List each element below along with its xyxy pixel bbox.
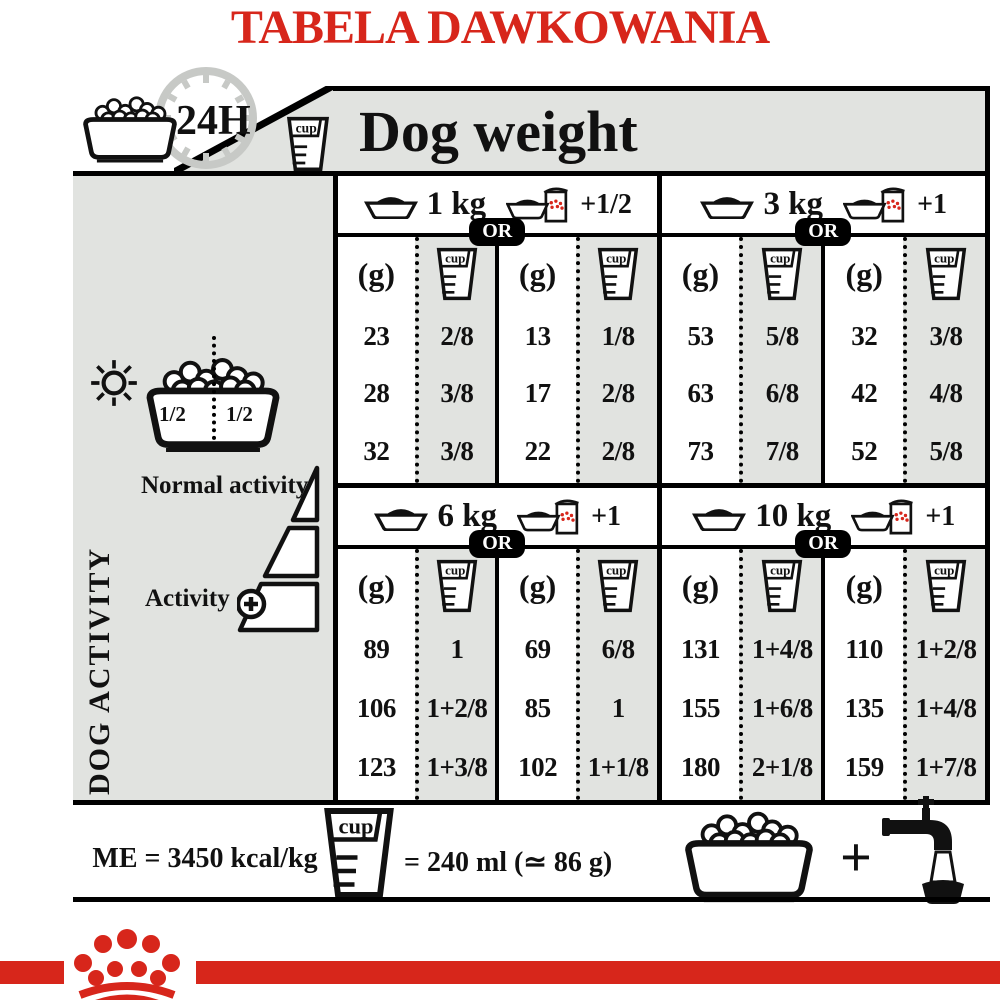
cup-value: 3/8	[440, 368, 473, 425]
grams-value: 69	[525, 623, 551, 682]
kibble-only-column: (g) 89 106 123 cup	[338, 549, 495, 800]
grams-header: (g)	[519, 549, 556, 623]
water-tap-icon	[872, 794, 972, 906]
footer-divider	[73, 897, 990, 902]
cup-value: 1	[612, 682, 625, 741]
dog-activity-label: DOG ACTIVITY	[83, 465, 117, 795]
cup-header: cup	[923, 549, 969, 623]
weight-header: 1 kg +1/2 OR	[338, 176, 657, 237]
section-columns: (g) 131 155 180 cup	[662, 549, 986, 800]
measuring-cup-icon: cup	[759, 559, 805, 613]
moon-icon	[287, 362, 323, 402]
measuring-cup-icon: cup	[923, 559, 969, 613]
with-pouch-column: (g) 13 17 22 cup	[495, 237, 656, 483]
pouch-quantity: +1	[591, 501, 621, 533]
weight-header: 3 kg +1 OR	[662, 176, 986, 237]
grams-value: 110	[845, 623, 883, 682]
svg-text:cup: cup	[445, 251, 465, 266]
section-columns: (g) 23 28 32 cup	[338, 237, 657, 483]
grams-value: 32	[363, 426, 389, 483]
or-badge: OR	[469, 530, 525, 558]
grams-header: (g)	[358, 549, 395, 623]
weight-header: 10 kg +1 OR	[662, 488, 986, 549]
grams-value: 73	[687, 426, 713, 483]
half-portion-right: 1/2	[226, 402, 253, 427]
cup-value: 1/8	[602, 311, 635, 368]
svg-text:cup: cup	[770, 563, 790, 578]
grams-value: 22	[525, 426, 551, 483]
measuring-cup-icon: cup	[759, 247, 805, 301]
grams-value: 85	[525, 682, 551, 741]
grams-value: 23	[363, 311, 389, 368]
cup-header: cup	[595, 549, 641, 623]
cup-value: 2+1/8	[752, 741, 813, 800]
bowl-icon	[691, 503, 747, 531]
cup-header: cup	[434, 549, 480, 623]
grams-value: 63	[687, 368, 713, 425]
cup-value: 7/8	[766, 426, 799, 483]
plus-sign: +	[840, 826, 872, 890]
cup-value: 1+6/8	[752, 682, 813, 741]
measuring-cup-icon: cup	[595, 247, 641, 301]
weight-header: 6 kg +1 OR	[338, 488, 657, 549]
cup-value: 4/8	[930, 368, 963, 425]
dog-activity-sidebar: 1/2 1/2 DOG ACTIVITY Normal activity Act…	[73, 171, 333, 805]
svg-text:cup: cup	[445, 563, 465, 578]
bowl-icon	[699, 191, 755, 219]
svg-text:cup: cup	[934, 563, 954, 578]
cup-value: 2/8	[602, 426, 635, 483]
hours-label: 24H	[176, 97, 251, 145]
measuring-cup-icon: cup	[284, 116, 332, 172]
cup-value: 6/8	[602, 623, 635, 682]
section-columns: (g) 53 63 73 cup	[662, 237, 986, 483]
grams-header: (g)	[682, 549, 719, 623]
pouch-quantity: +1	[917, 189, 947, 221]
grams-value: 155	[681, 682, 720, 741]
grams-header: (g)	[358, 237, 395, 311]
food-bowl-icon	[662, 806, 836, 904]
weight-section-1kg: 1 kg +1/2 OR (g) 23 28 32	[338, 176, 662, 488]
measuring-cup-icon: cup	[434, 247, 480, 301]
sun-icon	[87, 356, 141, 410]
cup-value: 1+7/8	[916, 741, 977, 800]
metabolizable-energy-label: ME = 3450 kcal/kg	[90, 843, 320, 875]
pouch-quantity: +1/2	[580, 189, 632, 221]
measuring-cup-icon: cup	[434, 559, 480, 613]
grams-value: 135	[845, 682, 884, 741]
cup-value: 1+4/8	[752, 623, 813, 682]
cup-value: 3/8	[440, 426, 473, 483]
svg-text:cup: cup	[606, 251, 626, 266]
measuring-cup-icon: cup	[595, 559, 641, 613]
activity-level-triangles-icon	[237, 464, 323, 638]
weight-section-3kg: 3 kg +1 OR (g) 53 63 73	[662, 176, 986, 488]
pouch-quantity: +1	[925, 501, 955, 533]
svg-text:cup: cup	[934, 251, 954, 266]
grams-value: 17	[525, 368, 551, 425]
with-pouch-column: (g) 110 135 159 cup	[821, 549, 985, 800]
or-badge: OR	[795, 530, 851, 558]
weight-section-10kg: 10 kg +1 OR (g) 131 155 180	[662, 488, 986, 800]
weight-section-6kg: 6 kg +1 OR (g) 89 106 123	[338, 488, 662, 800]
cup-value: 1	[450, 623, 463, 682]
with-pouch-column: (g) 69 85 102 cup	[495, 549, 656, 800]
grams-value: 123	[357, 741, 396, 800]
page-title: TABELA DAWKOWANIA	[0, 0, 1000, 55]
grams-value: 52	[851, 426, 877, 483]
cup-value: 1+2/8	[916, 623, 977, 682]
activity-label: Activity	[145, 585, 230, 613]
bowl-icon	[373, 503, 429, 531]
grams-header: (g)	[846, 549, 883, 623]
grams-header: (g)	[519, 237, 556, 311]
dog-weight-label: Dog weight	[359, 98, 638, 165]
cup-value: 1+4/8	[916, 682, 977, 741]
or-badge: OR	[469, 218, 525, 246]
grams-value: 159	[845, 741, 884, 800]
cup-value: 1+2/8	[426, 682, 487, 741]
grams-header: (g)	[682, 237, 719, 311]
bowl-icon	[363, 191, 419, 219]
bowl-plus-pouch-icon	[517, 497, 583, 537]
royal-canin-crown-logo	[60, 925, 194, 1000]
brand-bar-left	[0, 961, 64, 984]
svg-text:cup: cup	[338, 814, 373, 839]
dog-weight-band: Dog weight	[333, 86, 990, 171]
measuring-cup-icon: cup	[320, 806, 398, 900]
cup-header: cup	[923, 237, 969, 311]
grams-value: 42	[851, 368, 877, 425]
svg-text:cup: cup	[296, 120, 317, 135]
or-badge: OR	[795, 218, 851, 246]
half-portion-left: 1/2	[159, 402, 186, 427]
cup-value: 3/8	[930, 311, 963, 368]
kibble-only-column: (g) 131 155 180 cup	[662, 549, 822, 800]
grams-value: 106	[357, 682, 396, 741]
svg-text:cup: cup	[770, 251, 790, 266]
bowl-divider-line	[212, 336, 216, 440]
svg-text:cup: cup	[606, 563, 626, 578]
cup-value: 5/8	[930, 426, 963, 483]
cup-header: cup	[759, 237, 805, 311]
dosage-table-page: TABELA DAWKOWANIA 24H Dog weight cup 1/2…	[0, 0, 1000, 1000]
kibble-only-column: (g) 53 63 73 cup	[662, 237, 822, 483]
cup-value: 1+1/8	[588, 741, 649, 800]
grams-value: 102	[518, 741, 557, 800]
measuring-cup-icon: cup	[923, 247, 969, 301]
cup-value: 5/8	[766, 311, 799, 368]
dosage-table: 1 kg +1/2 OR (g) 23 28 32	[333, 171, 990, 805]
bowl-plus-pouch-icon	[851, 497, 917, 537]
cup-value: 1+3/8	[426, 741, 487, 800]
grams-value: 131	[681, 623, 720, 682]
grams-value: 53	[687, 311, 713, 368]
grams-value: 13	[525, 311, 551, 368]
grams-value: 32	[851, 311, 877, 368]
cup-header: cup	[759, 549, 805, 623]
food-bowl-icon	[78, 90, 182, 166]
cup-equivalence-label: = 240 ml (≃ 86 g)	[404, 845, 612, 879]
section-columns: (g) 89 106 123 cup	[338, 549, 657, 800]
cup-header: cup	[434, 237, 480, 311]
kibble-only-column: (g) 23 28 32 cup	[338, 237, 495, 483]
cup-value: 2/8	[440, 311, 473, 368]
cup-value: 6/8	[766, 368, 799, 425]
brand-bar-right	[196, 961, 1000, 984]
cup-value: 2/8	[602, 368, 635, 425]
with-pouch-column: (g) 32 42 52 cup	[821, 237, 985, 483]
grams-value: 28	[363, 368, 389, 425]
bowl-plus-pouch-icon	[843, 185, 909, 225]
grams-value: 180	[681, 741, 720, 800]
grams-value: 89	[363, 623, 389, 682]
grams-header: (g)	[846, 237, 883, 311]
cup-header: cup	[595, 237, 641, 311]
